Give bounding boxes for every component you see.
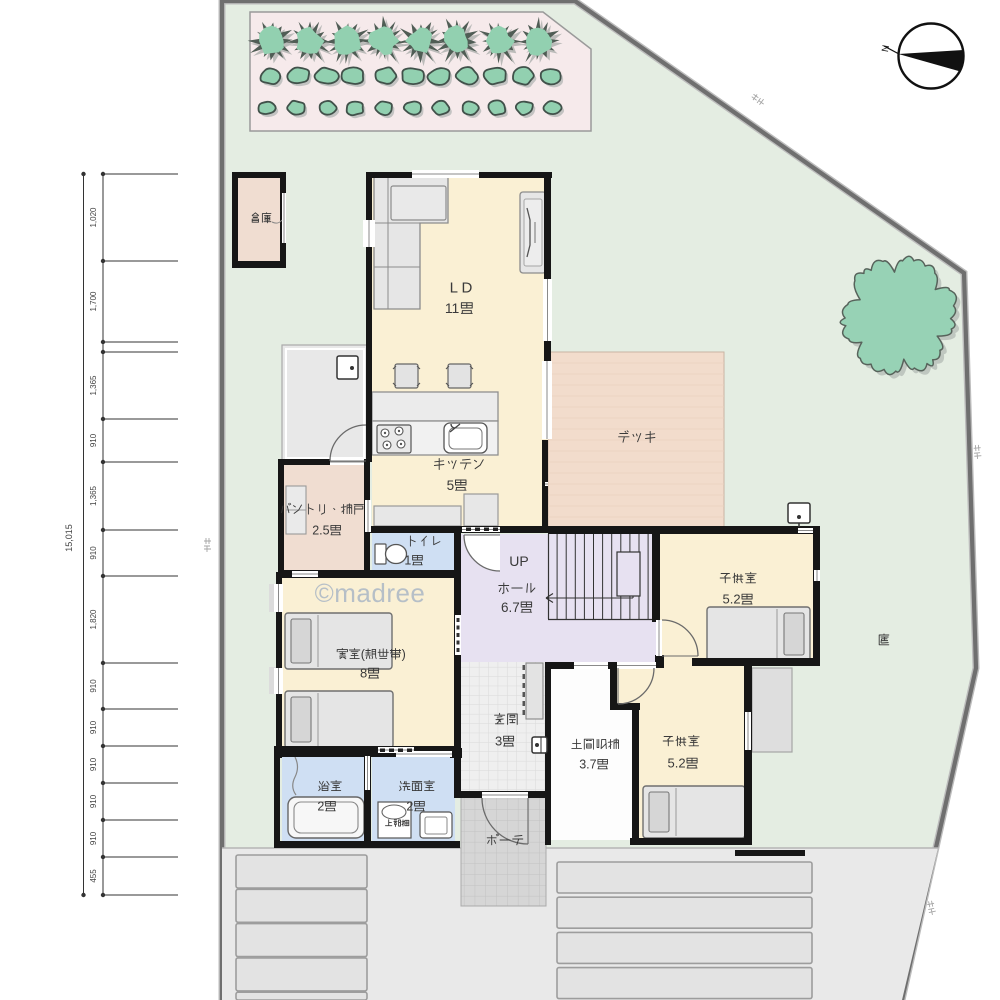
svg-text:910: 910 xyxy=(89,546,98,560)
svg-text:6.7: 6.7 xyxy=(501,600,520,615)
svg-text:5.2: 5.2 xyxy=(668,756,686,771)
svg-text:5.2: 5.2 xyxy=(723,592,741,607)
svg-text:5: 5 xyxy=(447,478,455,493)
svg-text:1,365: 1,365 xyxy=(89,375,98,396)
svg-text:11: 11 xyxy=(445,300,460,316)
svg-text:455: 455 xyxy=(89,869,98,883)
svg-text:2.5: 2.5 xyxy=(312,524,329,538)
svg-text:3: 3 xyxy=(495,734,502,749)
svg-text:L D: L D xyxy=(450,279,473,296)
svg-text:2: 2 xyxy=(317,800,324,814)
svg-text:910: 910 xyxy=(89,794,98,808)
svg-text:1,700: 1,700 xyxy=(89,291,98,312)
svg-text:2: 2 xyxy=(406,800,413,814)
svg-text:UP: UP xyxy=(509,553,528,569)
svg-text:1: 1 xyxy=(404,554,411,568)
svg-text:1,020: 1,020 xyxy=(89,207,98,228)
svg-text:910: 910 xyxy=(89,831,98,845)
svg-text:): ) xyxy=(402,648,406,662)
svg-text:910: 910 xyxy=(89,679,98,693)
svg-text:1,365: 1,365 xyxy=(89,485,98,506)
svg-text:910: 910 xyxy=(89,757,98,771)
svg-text:910: 910 xyxy=(89,433,98,447)
svg-text:3.7: 3.7 xyxy=(579,758,596,772)
svg-text:©madree: ©madree xyxy=(315,578,426,608)
svg-text:8: 8 xyxy=(360,666,367,681)
svg-text:1,820: 1,820 xyxy=(89,609,98,630)
svg-text:15,015: 15,015 xyxy=(64,524,74,552)
svg-text:910: 910 xyxy=(89,720,98,734)
